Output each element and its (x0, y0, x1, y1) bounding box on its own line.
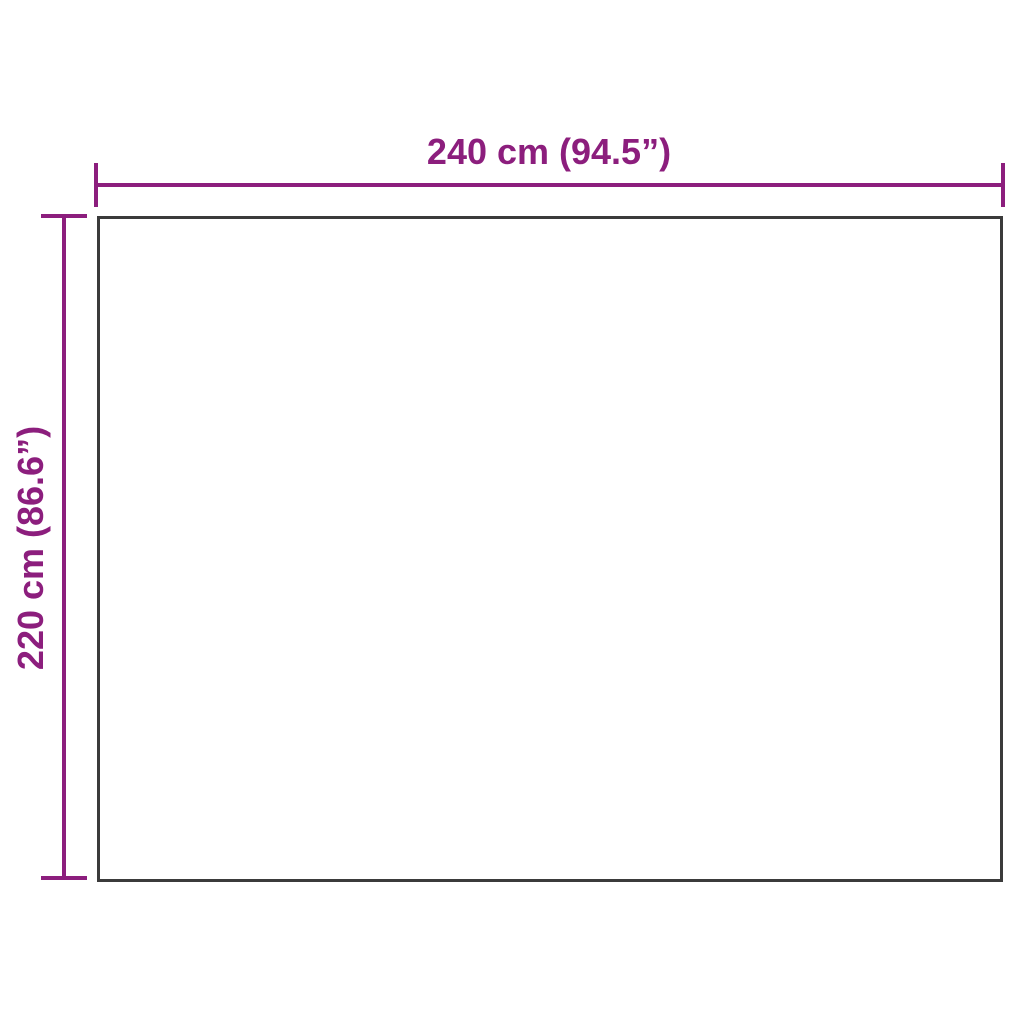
width-dimension-label: 240 cm (94.5”) (427, 132, 671, 172)
product-outline (97, 216, 1003, 882)
height-dimension-label: 220 cm (86.6”) (11, 426, 51, 670)
height-dimension-tick-bottom (41, 876, 87, 880)
width-dimension-tick-left (94, 163, 98, 207)
width-dimension-line (96, 183, 1003, 187)
height-dimension-line (62, 216, 66, 879)
height-dimension-tick-top (41, 214, 87, 218)
dimension-diagram: 240 cm (94.5”) 220 cm (86.6”) (0, 0, 1024, 1024)
width-dimension-tick-right (1001, 163, 1005, 207)
